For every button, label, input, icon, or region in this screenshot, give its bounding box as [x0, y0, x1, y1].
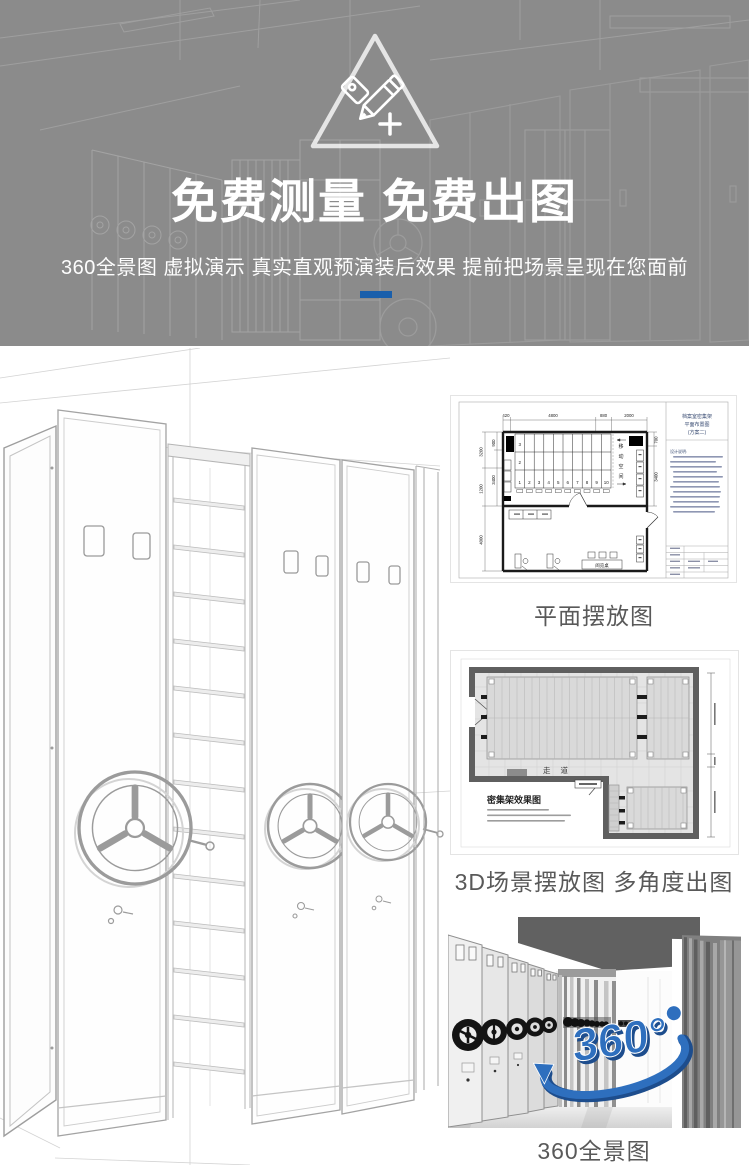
- floor-plan-caption: 平面摆放图: [449, 597, 739, 631]
- bay-number: 10: [604, 480, 610, 485]
- panorama-thumbnail: 360° 360°: [448, 917, 741, 1128]
- dim-label: 880: [600, 413, 608, 418]
- dim-label: 4000: [479, 535, 484, 545]
- dim-label: 700: [654, 436, 659, 444]
- plan-title-line2: 平面布置图: [684, 421, 709, 428]
- scene-dim-labels: [714, 703, 716, 813]
- corridor-label: 走道: [543, 765, 578, 775]
- dim-label: 900: [491, 439, 496, 447]
- promo-banner: 免费测量 免费出图 360全景图 虚拟演示 真实直观预演装后效果 提前把场景呈现…: [0, 0, 749, 346]
- plan-note-heading: 设计说明:: [670, 448, 687, 454]
- dim-label: 4800: [548, 413, 558, 418]
- shelving-line-art: [0, 348, 450, 1165]
- banner-subtitle: 360全景图 虚拟演示 真实直观预演装后效果 提前把场景呈现在您面前: [0, 251, 749, 280]
- plan-title-line1: 档案室密集架: [682, 413, 712, 420]
- accent-divider: [360, 291, 392, 298]
- banner-title: 免费测量 免费出图: [0, 176, 749, 228]
- reading-desk-label: 阅览桌: [595, 562, 609, 569]
- dim-label: 3400: [491, 475, 496, 485]
- movement-char: 间: [618, 473, 623, 480]
- scene-plan-thumbnail: 走道 密集架效果图: [450, 650, 739, 855]
- scene-plan-title: 密集架效果图: [486, 794, 541, 805]
- scene-plan-caption: 3D场景摆放图 多角度出图: [449, 863, 739, 897]
- dim-label: 3200: [479, 447, 484, 457]
- movement-char: 动: [618, 453, 623, 460]
- dim-label: 1200: [479, 484, 484, 494]
- movement-char: 移: [618, 443, 623, 450]
- dim-label: 3400: [654, 472, 659, 482]
- movement-char: 空: [618, 463, 623, 470]
- floor-plan-thumbnail: 档案室密集架 平面布置图 (方案二) 设计说明:: [450, 395, 737, 583]
- measure-draw-badge: [303, 28, 448, 156]
- plan-title-line3: (方案二): [688, 429, 707, 436]
- dim-label: 420: [502, 413, 510, 418]
- triangle-outline: [313, 36, 437, 146]
- panorama-caption: 360全景图: [449, 1132, 739, 1166]
- plus-icon: [380, 114, 400, 134]
- dim-label: 2000: [624, 413, 634, 418]
